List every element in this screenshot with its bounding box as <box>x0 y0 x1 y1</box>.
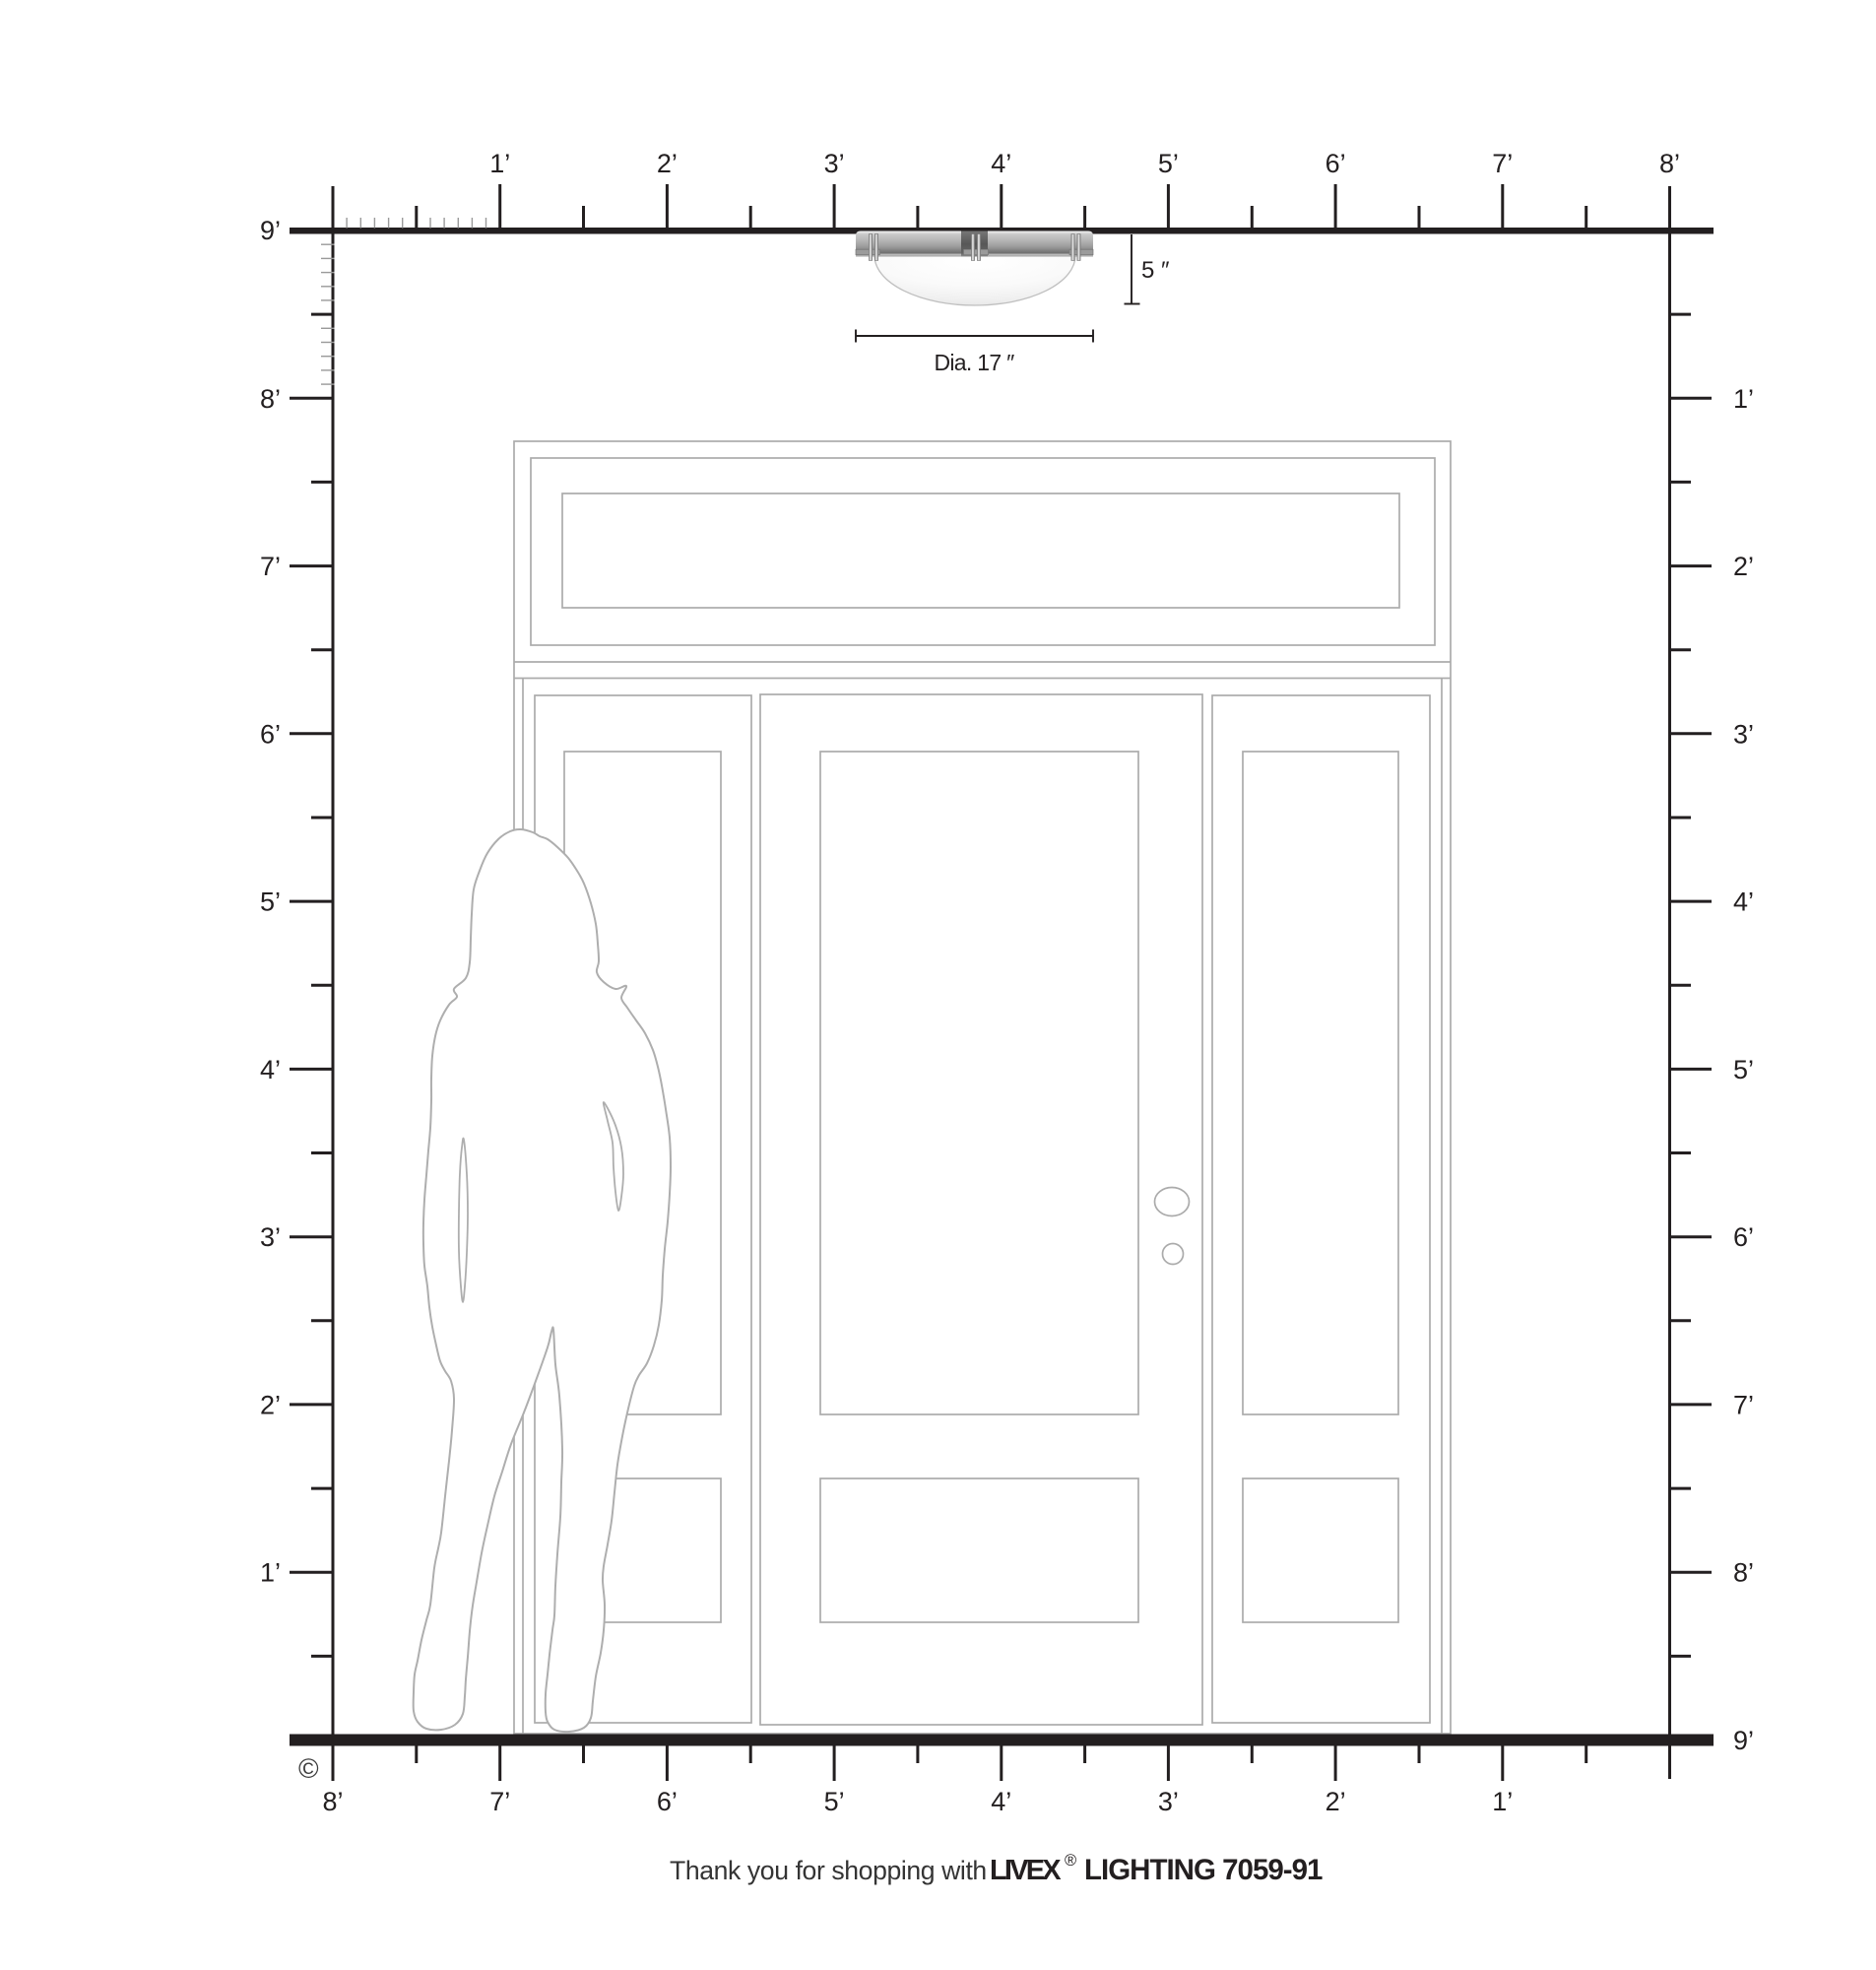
svg-text:5’: 5’ <box>1733 1055 1754 1084</box>
svg-text:5’: 5’ <box>1158 149 1179 178</box>
svg-text:LIVEX: LIVEX <box>990 1855 1062 1886</box>
svg-text:3’: 3’ <box>260 1222 281 1252</box>
svg-text:2’: 2’ <box>260 1390 281 1419</box>
svg-text:Thank you for shopping with: Thank you for shopping with <box>670 1856 987 1885</box>
svg-text:4’: 4’ <box>991 149 1011 178</box>
svg-text:9’: 9’ <box>1733 1726 1754 1755</box>
svg-text:8’: 8’ <box>260 384 281 414</box>
svg-text:2’: 2’ <box>1326 1787 1346 1816</box>
svg-text:7’: 7’ <box>1733 1390 1754 1419</box>
svg-text:4’: 4’ <box>1733 887 1754 917</box>
svg-text:5’: 5’ <box>824 1787 845 1816</box>
svg-text:6’: 6’ <box>657 1787 678 1816</box>
svg-text:2’: 2’ <box>657 149 678 178</box>
svg-text:6’: 6’ <box>1733 1222 1754 1252</box>
svg-text:2’: 2’ <box>1733 552 1754 581</box>
svg-text:3’: 3’ <box>1158 1787 1179 1816</box>
svg-text:LIGHTING 7059-91: LIGHTING 7059-91 <box>1084 1854 1323 1886</box>
svg-text:4’: 4’ <box>260 1055 281 1084</box>
svg-text:3’: 3’ <box>824 149 845 178</box>
svg-text:1’: 1’ <box>1492 1787 1513 1816</box>
svg-text:6’: 6’ <box>1326 149 1346 178</box>
svg-text:5’: 5’ <box>260 887 281 917</box>
svg-text:4’: 4’ <box>991 1787 1011 1816</box>
svg-text:5 ″: 5 ″ <box>1141 257 1170 284</box>
svg-text:1’: 1’ <box>489 149 510 178</box>
svg-text:1’: 1’ <box>260 1558 281 1588</box>
svg-text:®: ® <box>1065 1852 1076 1870</box>
svg-text:1’: 1’ <box>1733 384 1754 414</box>
svg-text:9’: 9’ <box>260 216 281 245</box>
svg-text:6’: 6’ <box>260 719 281 749</box>
svg-text:7’: 7’ <box>1492 149 1513 178</box>
svg-text:8’: 8’ <box>1733 1558 1754 1588</box>
svg-text:7’: 7’ <box>489 1787 510 1816</box>
svg-text:©: © <box>298 1753 319 1784</box>
svg-text:8’: 8’ <box>1659 149 1680 178</box>
svg-text:7’: 7’ <box>260 552 281 581</box>
svg-text:Dia. 17 ″: Dia. 17 ″ <box>934 350 1014 375</box>
svg-text:8’: 8’ <box>322 1787 343 1816</box>
svg-text:3’: 3’ <box>1733 719 1754 749</box>
